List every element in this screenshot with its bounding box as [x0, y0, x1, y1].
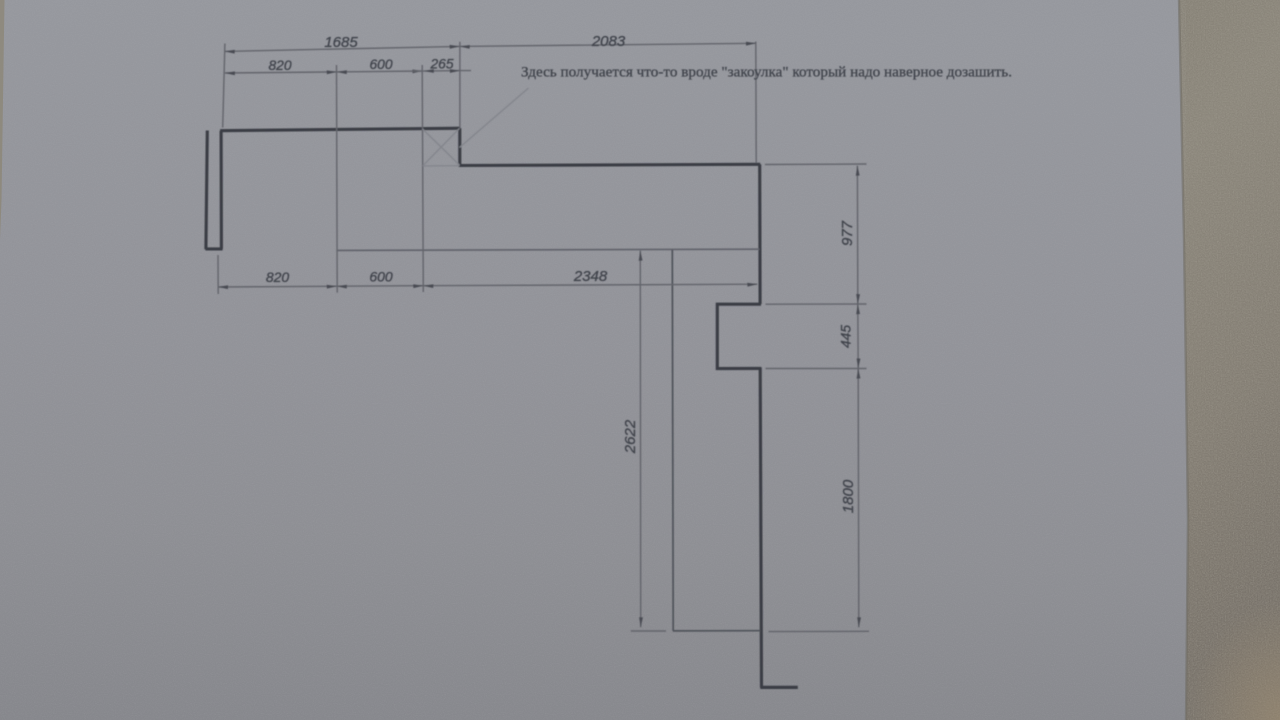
svg-text:820: 820	[266, 269, 290, 285]
svg-text:Здесь получается что-то вроде: Здесь получается что-то вроде "закоулка"…	[521, 65, 1012, 81]
svg-text:1685: 1685	[324, 34, 358, 51]
svg-text:1800: 1800	[840, 479, 857, 513]
svg-text:2622: 2622	[622, 419, 639, 454]
svg-text:977: 977	[839, 220, 856, 246]
svg-text:820: 820	[268, 58, 291, 73]
svg-text:445: 445	[839, 325, 854, 348]
svg-text:600: 600	[369, 269, 393, 285]
svg-text:265: 265	[429, 57, 453, 72]
svg-text:600: 600	[369, 57, 392, 72]
svg-text:2083: 2083	[591, 33, 626, 50]
svg-text:2348: 2348	[573, 268, 608, 285]
